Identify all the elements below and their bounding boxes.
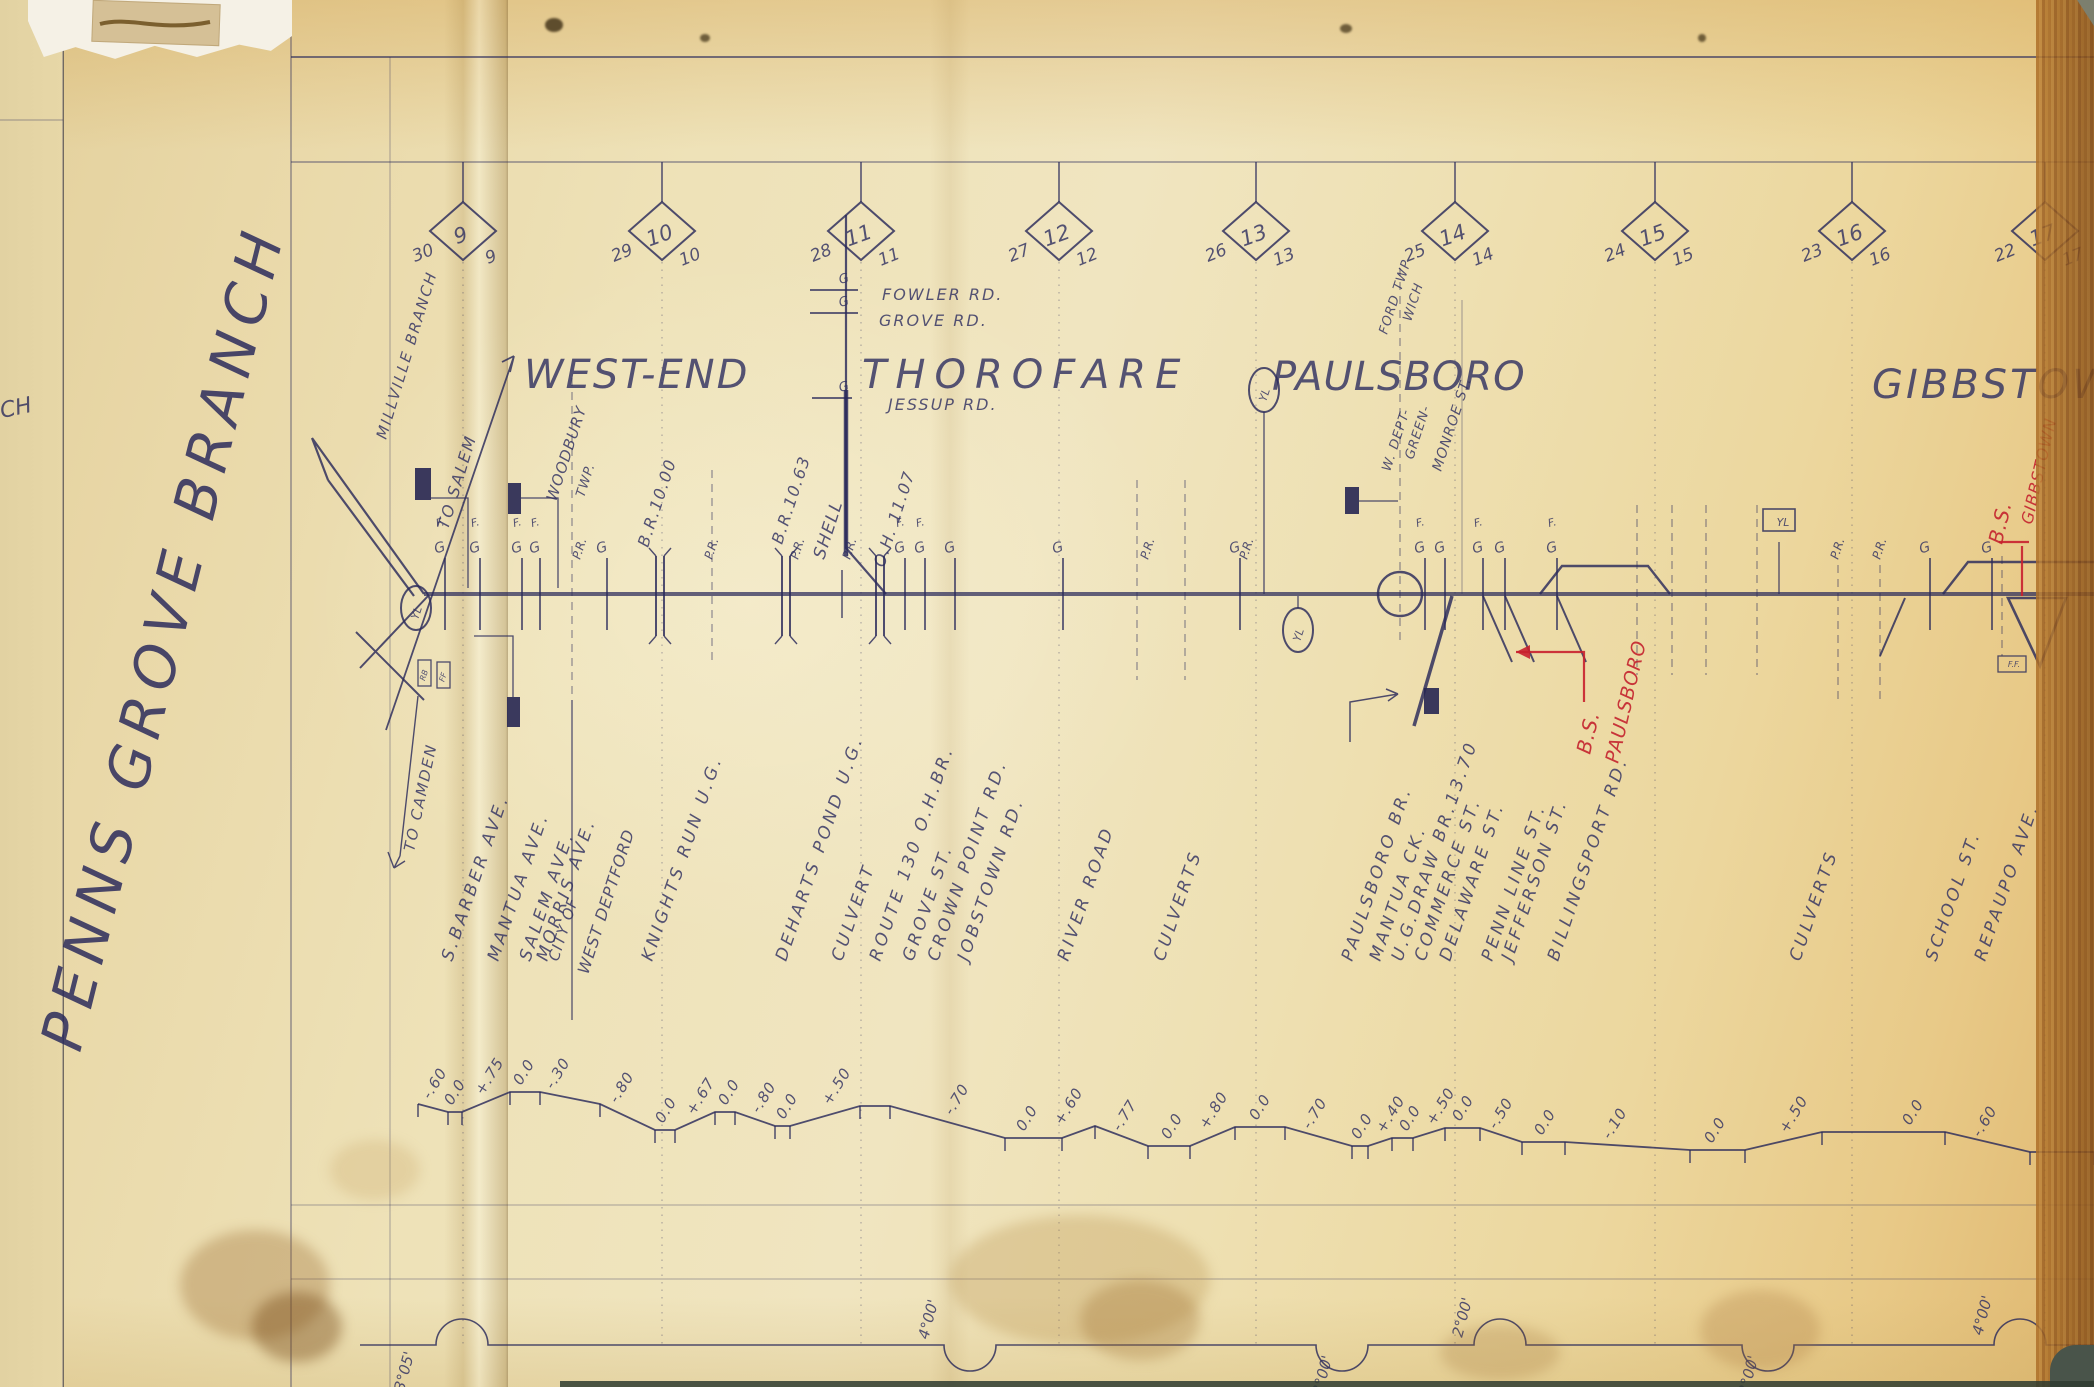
private-road-label: P.R. [1138,536,1158,561]
road-label: FOWLER RD. [882,285,1003,304]
station-name: PAULSBORO [1272,354,1526,400]
flag-symbol: F. [1546,515,1557,530]
valuation-number-right: 15 [1669,244,1697,271]
gate-symbol: G [1492,539,1507,558]
gate-symbol: G [467,539,482,558]
building-block [508,483,521,514]
chart-linework: 9309102910112811122712132613142514152415… [0,0,2094,1387]
gate-symbol: G [837,379,851,396]
valuation-number-right: 10 [676,244,704,271]
valuation-number-left: 30 [409,240,437,267]
paulsboro-passing-siding [1540,566,1670,594]
valuation-number-left: 28 [807,240,835,267]
milepost-number: 9 [450,222,471,249]
grade-value: +.67 [682,1074,719,1118]
curve-degree-label: 4°00' [1968,1293,1996,1337]
station-name: WEST-END [524,352,749,398]
grade-value: +.75 [471,1054,508,1098]
feature-label: KNIGHTS RUN U.G. [638,753,727,964]
private-road-label: P.R. [1870,536,1890,561]
feature-label: CULVERTS [1150,848,1207,964]
curve-alignment-line [360,1319,2094,1371]
grade-value: +.50 [1775,1092,1812,1136]
gate-symbol: G [1412,539,1427,558]
road-label: GROVE RD. [879,311,988,330]
building-block [1424,688,1439,714]
valuation-number-left: 24 [1601,240,1629,267]
bridge-label: B.R.10.00 [634,456,680,549]
gate-symbol: G [1050,539,1065,558]
feature-label: CULVERTS [1786,848,1843,964]
grade-value: 0.0 [509,1056,538,1088]
flag-symbol: F. [1472,515,1483,530]
grade-value: 0.0 [1012,1102,1041,1134]
shell-road-ticks [810,290,858,398]
valuation-number-right: 12 [1073,244,1101,271]
grade-value: +.50 [818,1064,855,1108]
grade-value: -.77 [1108,1096,1141,1134]
gibbstown-spur [1880,598,1905,656]
valuation-number-left: 23 [1798,240,1826,267]
millville-branch-track [312,438,424,596]
curve-degree-label: 4°00' [914,1297,942,1341]
yard-limit-label: YL [1257,387,1273,403]
flag-symbol: F. [529,515,540,530]
grade-value: 0.0 [1245,1091,1274,1123]
grade-value: -.70 [940,1080,973,1118]
gate-symbol: G [837,271,851,288]
signal-box-label: FF [437,671,449,683]
yard-limit-label: YL [1777,516,1790,529]
flag-symbol: F. [469,515,480,530]
valuation-number-right: 14 [1469,244,1497,271]
feature-label: BILLINGSPORT RD. [1544,754,1633,964]
grade-value: -.50 [1484,1094,1517,1132]
valuation-number-right: 13 [1270,244,1298,271]
gate-symbol: G [432,539,447,558]
flag-symbol: F. [1414,515,1425,530]
private-road-label: P.R. [1828,536,1848,561]
valuation-number-left: 26 [1202,240,1230,267]
red-annotation-line [1999,542,2029,596]
gate-symbol: G [509,539,524,558]
grade-value: 0.0 [651,1094,680,1126]
curve-degree-label: 3°00' [1308,1353,1336,1387]
gate-symbol: G [837,294,851,311]
private-road-label: P.R. [840,536,860,561]
grade-value: 0.0 [1530,1106,1559,1138]
red-annotation-text: PAULSBORO [1601,638,1651,765]
valuation-number-left: 27 [1005,240,1033,267]
grade-value: -.30 [541,1054,574,1092]
station-name: GIBBSTOWN [1872,362,2094,408]
gate-symbol: G [892,539,907,558]
grade-value: 0.0 [772,1090,801,1122]
gate-symbol: G [527,539,542,558]
red-annotation-arrow [1516,645,1530,659]
yard-limit-label: YL [409,605,425,621]
signal-box-label: F.F. [2008,660,2020,669]
gate-symbol: G [594,539,609,558]
valuation-number-right: 16 [1866,244,1894,271]
red-annotation-text: GIBBSTOWN [2017,416,2060,526]
grade-value: +.80 [1195,1088,1232,1132]
valuation-number-left: 22 [1991,240,2019,267]
private-road-label: P.R. [1237,536,1257,561]
bridge-label: B.R.10.63 [768,453,814,546]
feature-label: REPAUPO AVE. [1971,801,2044,964]
station-name: THOROFARE [862,352,1189,398]
valuation-number-right: 9 [482,246,500,269]
gate-symbol: G [1544,539,1559,558]
curve-degree-label: 2°00' [1448,1295,1476,1339]
grade-value: -.10 [1598,1104,1631,1142]
grade-value: 0.0 [1700,1114,1729,1146]
gate-symbol: G [1432,539,1447,558]
gate-symbol: G [1917,539,1932,558]
paulsboro-br-bracket [1350,689,1398,742]
curve-degree-label: 2°00' [1734,1353,1762,1387]
red-annotation-text: B.S. [1983,499,2016,546]
gate-symbol: G [942,539,957,558]
grade-value: +.60 [1050,1084,1087,1128]
gibbstown-passing-siding [1943,562,2094,594]
building-poles [431,498,1398,697]
flag-symbol: F. [511,515,522,530]
grade-value: -.70 [1298,1094,1331,1132]
feature-label: RIVER ROAD [1054,823,1119,963]
grade-value: 0.0 [1898,1096,1927,1128]
valuation-number-left: 29 [608,240,636,267]
boundary-label: TWP. [574,461,599,499]
gate-symbol: G [912,539,927,558]
valuation-number-right: 11 [875,244,903,271]
millville-branch-label: MILLVILLE BRANCH [373,269,441,441]
curve-degree-label: 3°05' [390,1349,418,1387]
grade-value: -.60 [1968,1102,2001,1140]
gate-symbol: G [1470,539,1485,558]
red-annotation-line [1516,652,1584,702]
grade-value: 0.0 [1157,1110,1186,1142]
grade-value: 0.0 [714,1076,743,1108]
signal-box-label: RB [418,669,430,682]
flag-symbol: F. [914,515,925,530]
yard-limit-label: YL [1291,627,1307,643]
valuation-number-right: 17 [2059,244,2087,271]
road-label: JESSUP RD. [885,395,998,414]
building-block [415,468,431,500]
building-block [1345,487,1359,514]
track-chart-page: PENNS GROVE BRANCH CH [0,0,2094,1387]
grade-value: -.80 [605,1068,638,1106]
red-annotation-text: B.S. [1571,709,1604,756]
building-block [507,697,520,727]
